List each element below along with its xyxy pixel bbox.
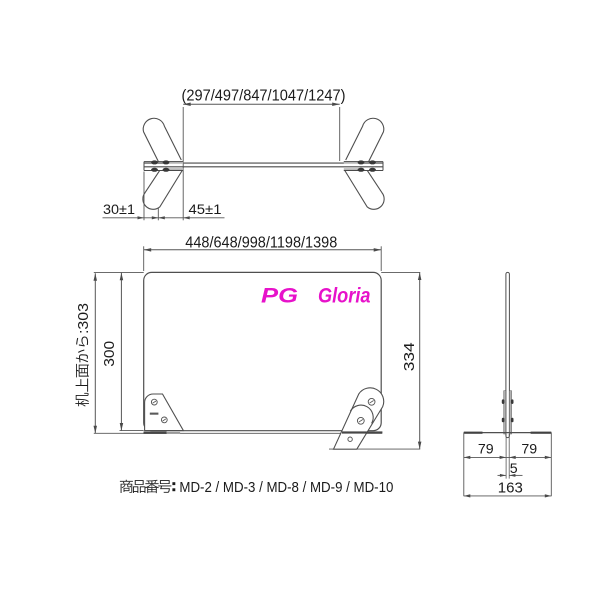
svg-text:79: 79 [478,442,494,458]
svg-text:5: 5 [510,461,518,477]
svg-text:(297/497/847/1047/1247): (297/497/847/1047/1247) [182,87,346,104]
svg-text:334: 334 [402,342,418,371]
svg-text:79: 79 [521,442,537,458]
svg-text:163: 163 [498,480,523,497]
svg-text:45±1: 45±1 [189,202,222,217]
svg-text:PG: PG [261,284,298,308]
svg-text:Gloria: Gloria [318,284,371,308]
svg-text:30±1: 30±1 [103,202,135,217]
svg-text:300: 300 [102,341,118,367]
svg-text:MD-2 / MD-3 / MD-8 / MD-9 / MD: MD-2 / MD-3 / MD-8 / MD-9 / MD-10 [179,479,393,496]
svg-text::303: :303 [76,303,92,334]
svg-text:448/648/998/1198/1398: 448/648/998/1198/1398 [185,235,337,252]
